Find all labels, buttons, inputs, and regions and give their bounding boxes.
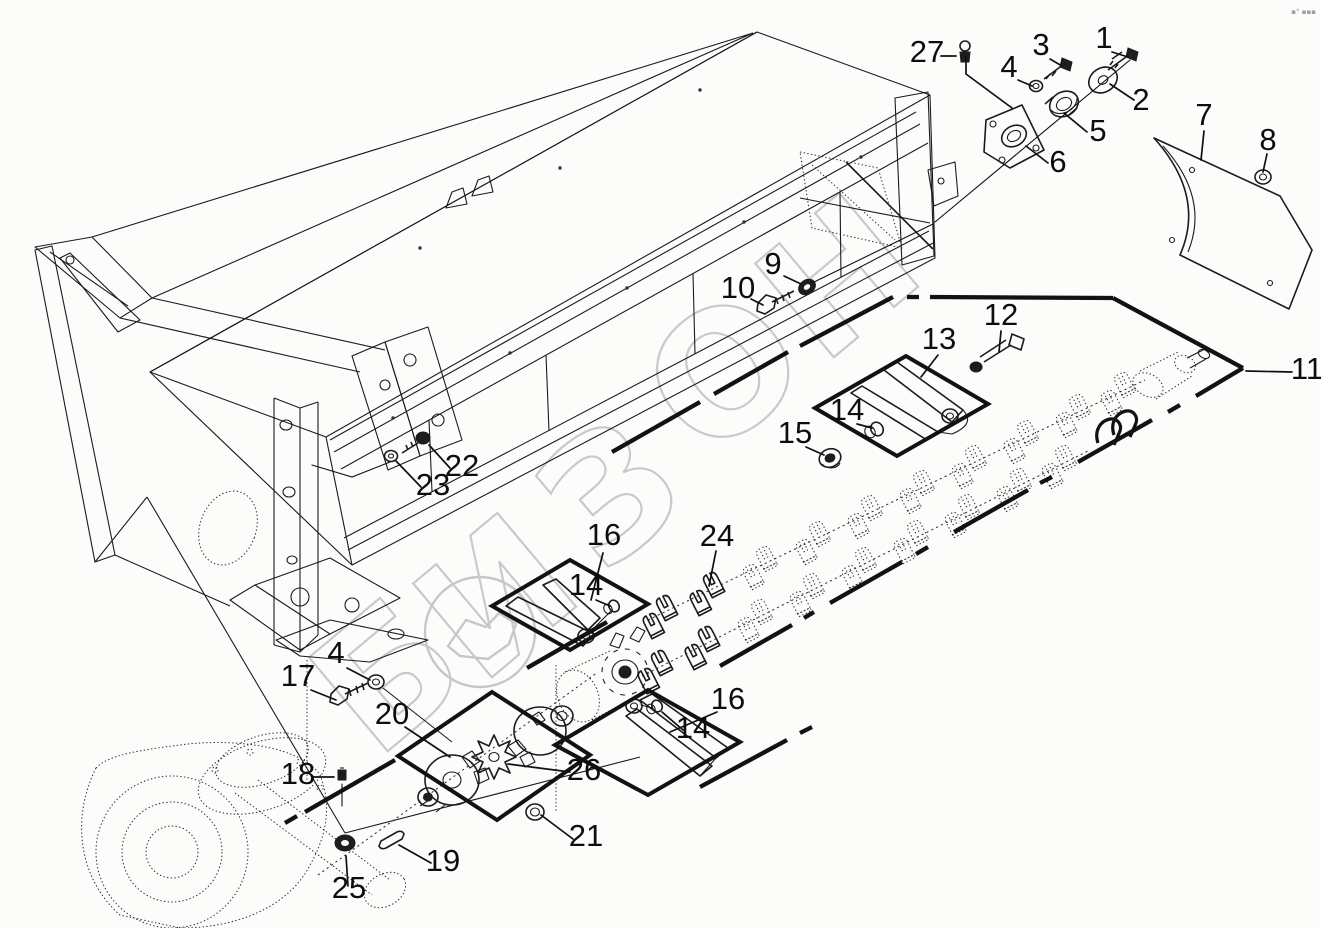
bolt-12: [970, 334, 1024, 372]
guard-plate-7: [1154, 138, 1312, 309]
callout-4: 4: [1000, 49, 1017, 84]
coupling-spider-26: [472, 735, 516, 779]
callout-23: 23: [416, 467, 450, 502]
washer-23: [385, 451, 398, 462]
callout-17: 17: [281, 658, 315, 693]
callout-16: 16: [711, 681, 745, 716]
flanged-nut-15: [817, 446, 844, 470]
callout-6: 6: [1049, 144, 1066, 179]
callout-18: 18: [281, 756, 315, 791]
callout-5: 5: [1089, 113, 1106, 148]
grease-fitting-27: [960, 41, 970, 62]
callout-15: 15: [778, 415, 812, 450]
callout-3: 3: [1032, 27, 1049, 62]
callout-12: 12: [984, 297, 1018, 332]
parts-diagram-page: Б И З О Н: [0, 0, 1321, 928]
callout-14: 14: [569, 567, 603, 602]
callout-7: 7: [1195, 97, 1212, 132]
callout-20: 20: [375, 696, 409, 731]
set-screw-18: [338, 768, 346, 780]
callout-19: 19: [426, 843, 460, 878]
housing-tabs: [446, 176, 493, 208]
callout-24: 24: [700, 518, 734, 553]
callout-2: 2: [1132, 82, 1149, 117]
exploded-view-drawing: Б И З О Н: [0, 0, 1321, 928]
callout-14: 14: [676, 710, 710, 745]
washer-25: [335, 835, 355, 851]
corner-mark: ▪° ▪▪▪: [1291, 8, 1316, 16]
callout-21: 21: [569, 818, 603, 853]
callout-1: 1: [1095, 20, 1112, 55]
pin-14-mid: [602, 598, 621, 615]
callout-8: 8: [1259, 122, 1276, 157]
callout-10: 10: [721, 270, 755, 305]
callout-4: 4: [327, 635, 344, 670]
callout-26: 26: [567, 752, 601, 787]
callout-25: 25: [332, 870, 366, 905]
callout-13: 13: [922, 321, 956, 356]
callout-16: 16: [587, 517, 621, 552]
bushing-21: [526, 804, 544, 820]
clips-lower-row: [732, 444, 1081, 643]
callout-14: 14: [830, 392, 864, 427]
callout-27: 27: [910, 34, 944, 69]
flange-6: [984, 105, 1044, 168]
callout-9: 9: [764, 246, 781, 281]
callout-11: 11: [1291, 351, 1321, 386]
shaft-axis-lower: [642, 450, 1090, 676]
